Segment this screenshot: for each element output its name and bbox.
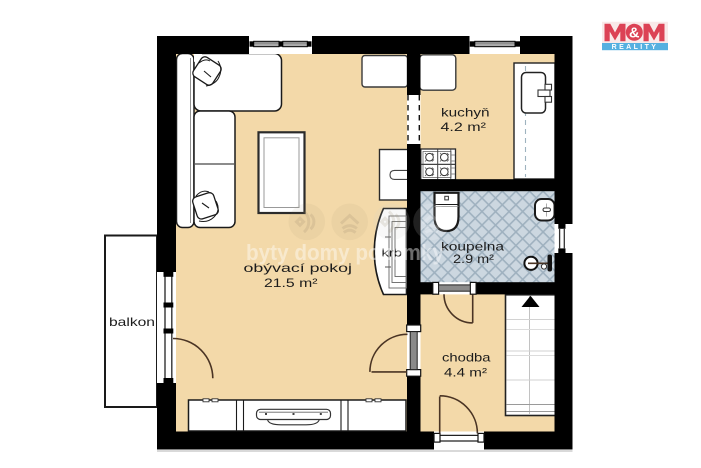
svg-text:&: & xyxy=(629,26,640,42)
svg-text:2.9 m²: 2.9 m² xyxy=(453,252,494,266)
svg-text:balkon: balkon xyxy=(109,315,155,329)
svg-text:kuchyň: kuchyň xyxy=(441,106,490,120)
svg-text:byty domy pozemky: byty domy pozemky xyxy=(246,240,445,265)
svg-text:REALITY: REALITY xyxy=(612,44,659,51)
svg-text:21.5 m²: 21.5 m² xyxy=(264,276,318,290)
svg-text:chodba: chodba xyxy=(442,351,491,365)
svg-text:4.2 m²: 4.2 m² xyxy=(441,120,487,134)
svg-text:4.4 m²: 4.4 m² xyxy=(444,365,487,379)
